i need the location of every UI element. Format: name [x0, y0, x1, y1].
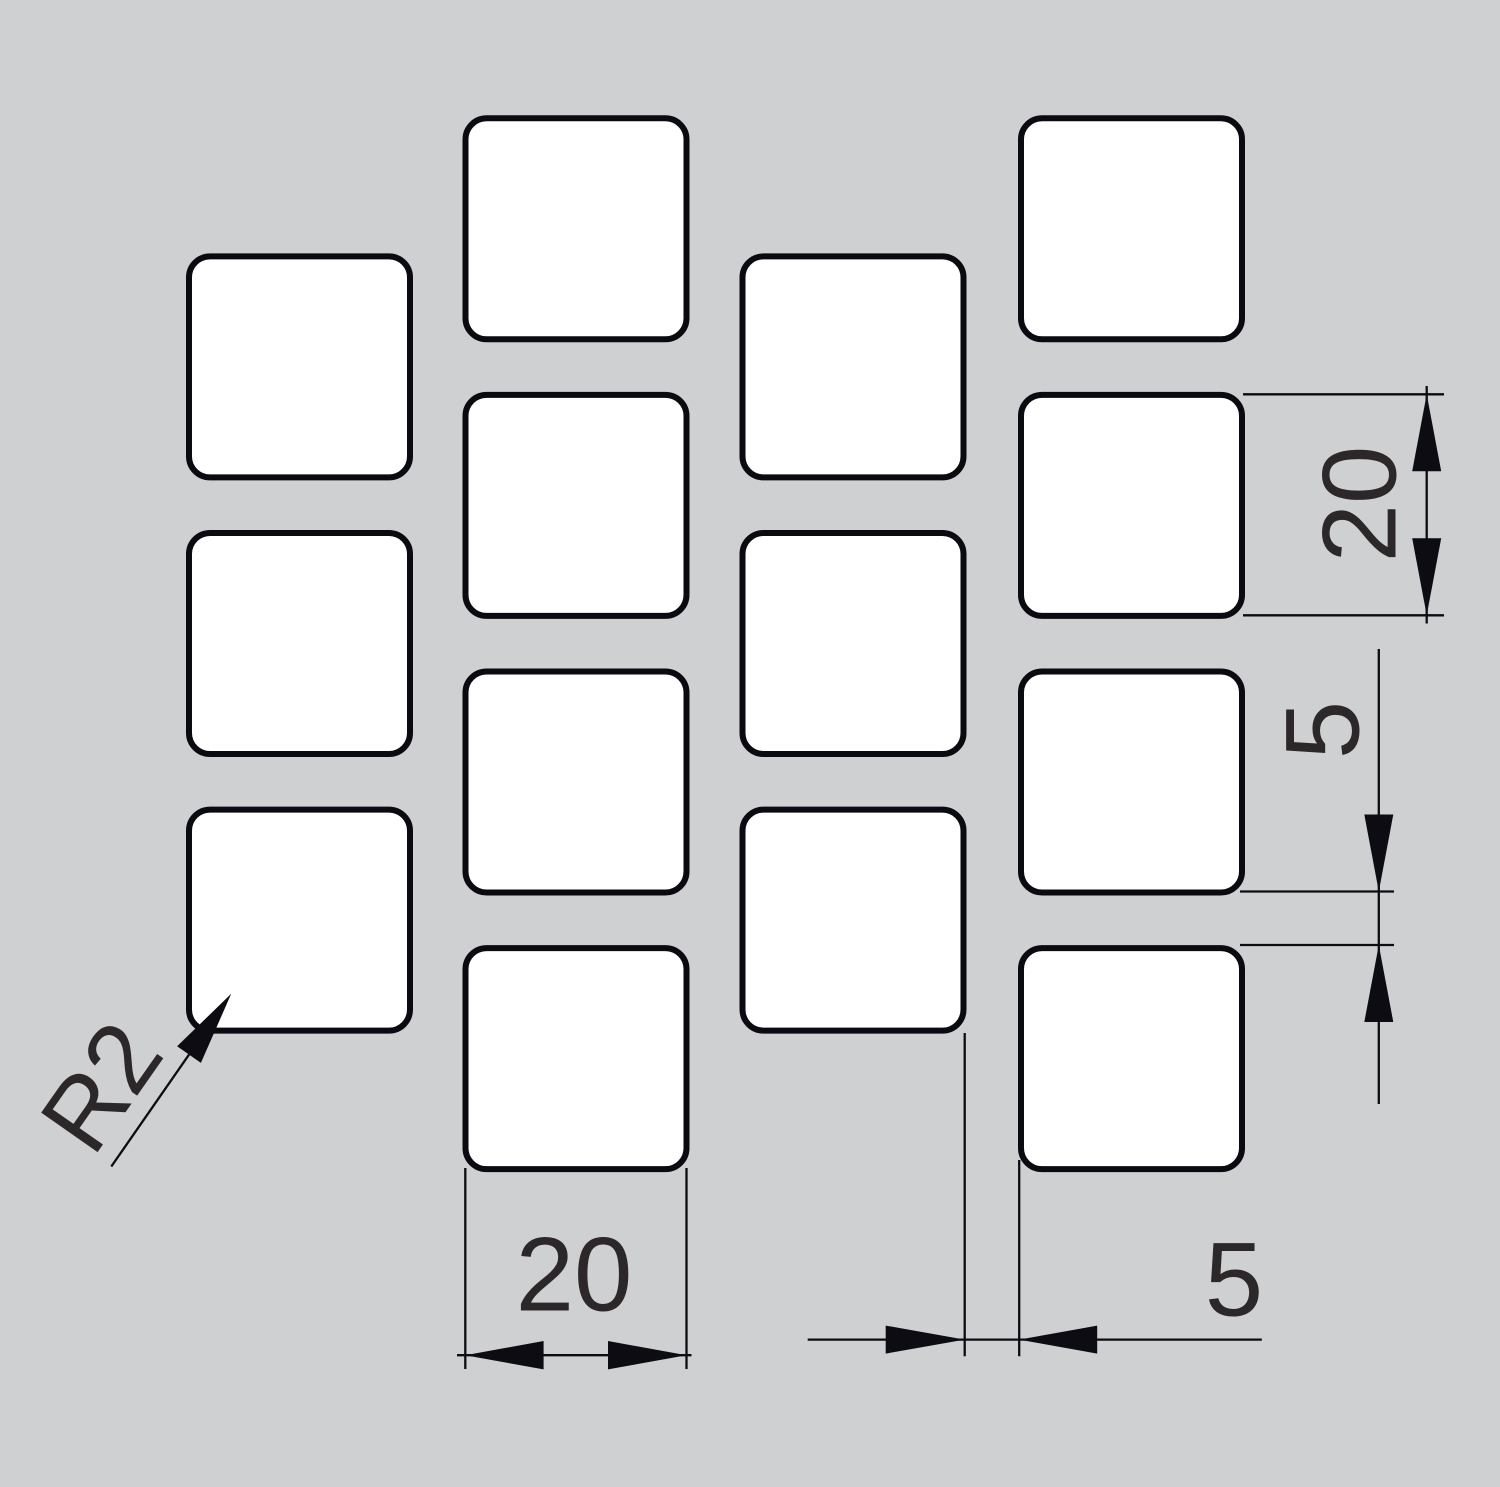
svg-text:20: 20 — [1302, 446, 1419, 563]
svg-text:20: 20 — [516, 1217, 633, 1334]
svg-text:5: 5 — [1205, 1222, 1263, 1339]
svg-text:5: 5 — [1265, 701, 1382, 759]
